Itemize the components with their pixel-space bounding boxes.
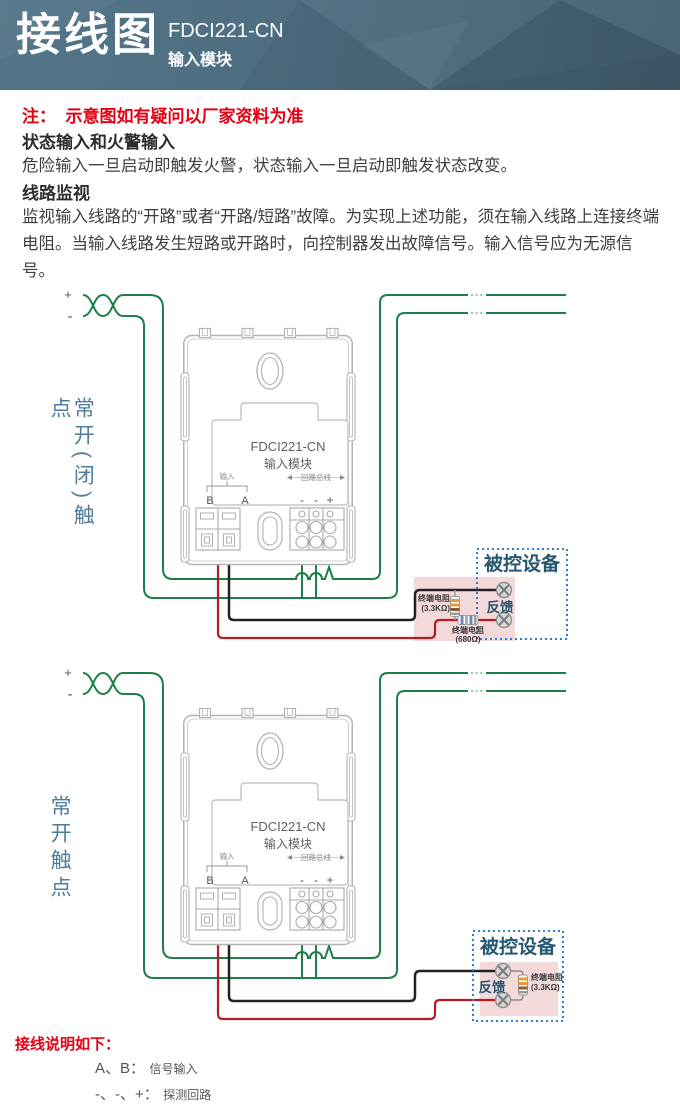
terminating-resistor-3k3-icon-2 bbox=[519, 975, 528, 995]
res1-name-2: 终端电阻 bbox=[530, 972, 563, 982]
legend-item-ab-key: A、B： bbox=[95, 1060, 145, 1077]
bus-continuation-dots-1 bbox=[471, 295, 483, 313]
legend-item-loop-value: 探测回路 bbox=[163, 1088, 211, 1102]
input-module-1 bbox=[181, 329, 355, 565]
terminating-resistor-680-icon-1 bbox=[458, 616, 478, 625]
diagram-2: 被控设备 终端电阻 (3.3KΩ) 反馈 + - bbox=[64, 665, 566, 1021]
res1-value-1: (3.3KΩ) bbox=[421, 604, 450, 613]
legend-title: 接线说明如下： bbox=[15, 1033, 120, 1054]
feedback-screw-top-1 bbox=[497, 583, 512, 598]
feedback-label-2: 反馈 bbox=[479, 979, 506, 995]
bus-in-plus-label-2: + bbox=[64, 665, 72, 680]
page: 接线图 FDCI221-CN 输入模块 注： 示意图如有疑问以厂家资料为准 状态… bbox=[0, 0, 680, 1109]
diagram-1: 被控设备 终端电阻 (3.3KΩ) 终端电阻 (680Ω) 反馈 + - bbox=[64, 287, 567, 644]
contact-type-label-2: 常开触点 bbox=[48, 795, 71, 925]
res2-name-1: 终端电阻 bbox=[451, 625, 484, 635]
res1-value-2: (3.3KΩ) bbox=[531, 983, 560, 992]
controlled-device-title-1: 被控设备 bbox=[484, 552, 561, 575]
res1-name-1: 终端电阻 bbox=[417, 593, 450, 603]
legend-item-loop: -、-、+： 探测回路 bbox=[95, 1083, 211, 1104]
feedback-label-1: 反馈 bbox=[487, 599, 515, 615]
legend-item-ab-value: 信号输入 bbox=[149, 1062, 197, 1076]
contact-type-label-1: 常开(闭)触点 bbox=[48, 397, 94, 557]
feedback-screw-top-2 bbox=[496, 964, 511, 979]
bus-in-minus-label-2: - bbox=[68, 686, 73, 703]
terminating-resistor-3k3-icon-1 bbox=[451, 597, 460, 617]
wiring-diagrams: FDCI221-CN 输入模块 输入 B A 回路总线 - - + bbox=[0, 0, 680, 1109]
legend-item-loop-key: -、-、+： bbox=[95, 1086, 159, 1103]
legend-item-ab: A、B： 信号输入 bbox=[95, 1057, 197, 1078]
bus-in-plus-label-1: + bbox=[64, 287, 72, 302]
bus-in-minus-label-1: - bbox=[68, 308, 73, 325]
res2-value-1: (680Ω) bbox=[455, 635, 480, 644]
input-module-2 bbox=[181, 709, 355, 945]
controlled-device-title-2: 被控设备 bbox=[480, 935, 557, 958]
bus-continuation-dots-2 bbox=[471, 673, 483, 691]
